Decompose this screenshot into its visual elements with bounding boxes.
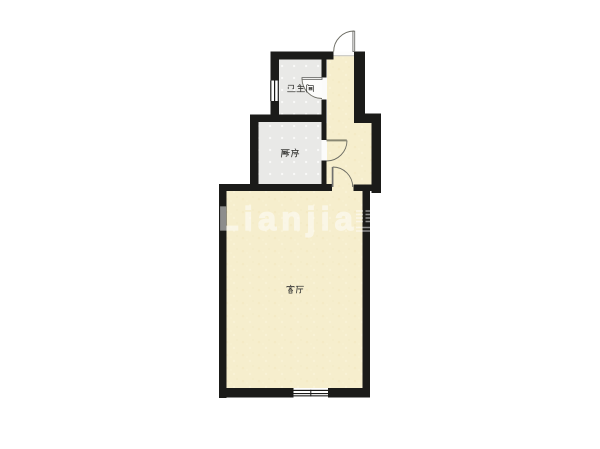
- svg-text:Lianjia: Lianjia: [219, 200, 359, 237]
